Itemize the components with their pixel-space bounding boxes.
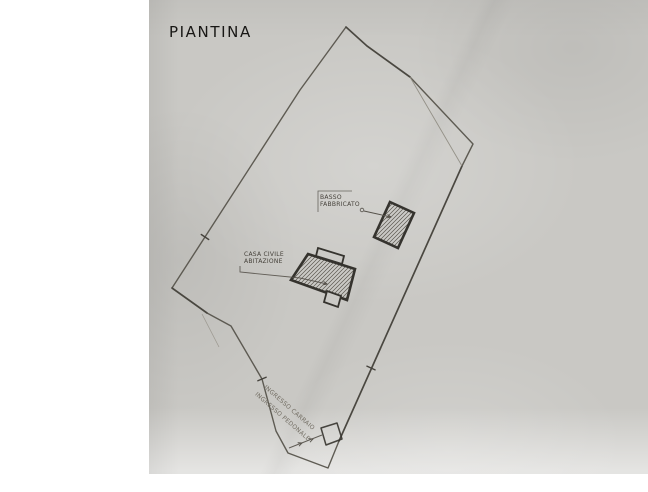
label-basso-line2: FABBRICATO (320, 201, 360, 208)
label-casa-line1: CASA CIVILE (244, 251, 284, 258)
sliver-line (410, 77, 462, 166)
label-casa-line2: ABITAZIONE (244, 258, 284, 265)
label-basso-line1: BASSO (320, 194, 360, 201)
page-title: PIANTINA (169, 23, 252, 41)
basso-leader-circle (360, 208, 364, 212)
site-plan-drawing (0, 0, 648, 492)
boundary-overdraw (172, 288, 207, 313)
label-basso-fabbricato: BASSO FABBRICATO (320, 194, 360, 208)
boundary-tick (201, 234, 208, 239)
property-boundary (172, 27, 473, 468)
scanned-plan-page: PIANTINA BASSO FABBRICATO CASA CIVILE AB… (0, 0, 648, 492)
stray-pencil-line (202, 314, 219, 347)
label-casa-civile: CASA CIVILE ABITAZIONE (244, 251, 284, 265)
boundary-overdraw (346, 27, 410, 77)
building-basso-fabbricato (374, 202, 414, 248)
building-casa-civile (291, 254, 355, 300)
